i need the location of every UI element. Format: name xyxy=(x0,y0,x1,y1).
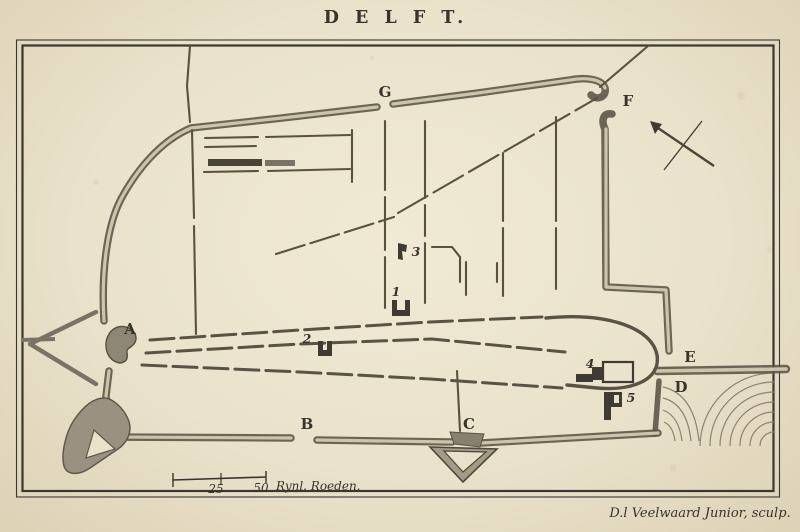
scale-end-label: 50 xyxy=(253,481,269,495)
northwest-built-blocks xyxy=(208,159,295,166)
dark-block-long xyxy=(208,159,262,166)
diagonal-canal-main xyxy=(398,98,597,213)
marker-C: C xyxy=(463,415,475,433)
building-1 xyxy=(392,300,410,316)
wall-below-d-path xyxy=(655,381,659,434)
building-5-group xyxy=(604,392,622,420)
north-road-outside xyxy=(187,46,190,122)
map-title: D E L F T. xyxy=(324,8,468,28)
marker-3: 3 xyxy=(412,244,421,259)
gate-a-hornwork-lines xyxy=(30,312,96,384)
marker-5: 5 xyxy=(627,390,636,405)
canal-row-upper xyxy=(150,317,542,340)
building-3 xyxy=(398,243,407,260)
compass-arrowhead xyxy=(650,121,662,134)
building-4-group xyxy=(576,362,633,382)
marker-A: A xyxy=(123,320,136,338)
road-from-gate-f xyxy=(600,46,648,87)
numbered-buildings xyxy=(318,243,633,420)
city-wall-west-north-path xyxy=(103,107,377,436)
gate-c-junction xyxy=(450,432,484,447)
scale-mid-label: 25 xyxy=(207,482,223,496)
dark-block-short xyxy=(265,160,295,166)
vertical-canal-6 xyxy=(466,262,497,295)
marker-F: F xyxy=(623,92,634,110)
marker-D: D xyxy=(674,378,687,396)
compass-needle-icon xyxy=(650,121,714,170)
diagonal-street-secondary xyxy=(276,217,394,254)
gate-a-road-to-border xyxy=(21,339,55,340)
outworks xyxy=(21,312,497,482)
scale-unit-label: Rynl. Roeden. xyxy=(275,479,361,493)
marker-1: 1 xyxy=(392,284,401,299)
marker-E: E xyxy=(684,348,695,366)
map-frame xyxy=(17,40,780,497)
northwest-block-streets xyxy=(204,135,350,172)
bent-street-near-3 xyxy=(432,247,460,282)
delft-map-canvas: D E L F T. xyxy=(0,0,800,532)
scale-bar: 25 50 Rynl. Roeden. xyxy=(173,471,361,496)
marker-B: B xyxy=(301,415,314,433)
canal-row-middle xyxy=(146,339,565,353)
frame-inner-line xyxy=(23,46,774,492)
canal-row-lower xyxy=(142,365,562,388)
engraved-map-sheet: D E L F T. xyxy=(0,0,800,532)
city-wall-east-path xyxy=(603,114,669,351)
west-inner-street xyxy=(192,130,196,334)
engraver-credit: D.l Veelwaard Junior, sculp. xyxy=(608,506,790,521)
marker-2: 2 xyxy=(302,331,312,346)
frame-outer-line xyxy=(17,40,780,497)
marker-G: G xyxy=(379,83,392,101)
letter-markers: A B C D E F G xyxy=(123,83,696,433)
marker-4: 4 xyxy=(586,356,595,371)
